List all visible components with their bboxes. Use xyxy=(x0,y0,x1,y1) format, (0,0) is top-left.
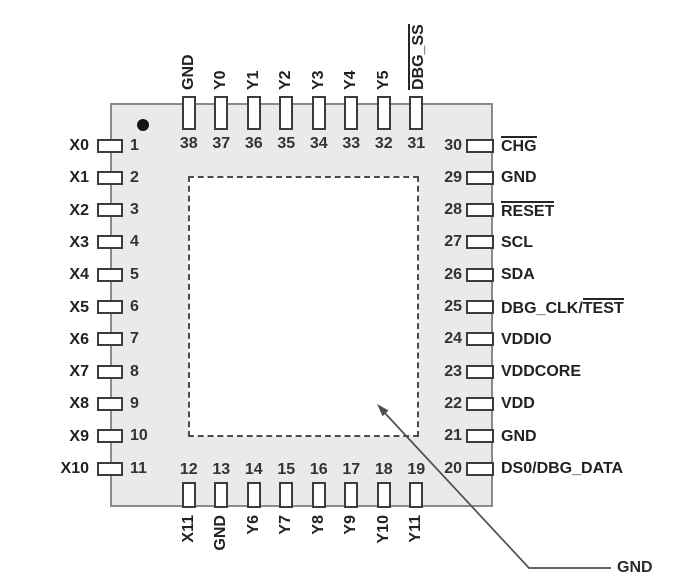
pinout-diagram: GND 1X02X13X24X35X46X57X68X79X810X911X10… xyxy=(0,0,700,585)
gnd-callout-arrow xyxy=(0,0,700,585)
gnd-callout-label: GND xyxy=(617,559,653,577)
